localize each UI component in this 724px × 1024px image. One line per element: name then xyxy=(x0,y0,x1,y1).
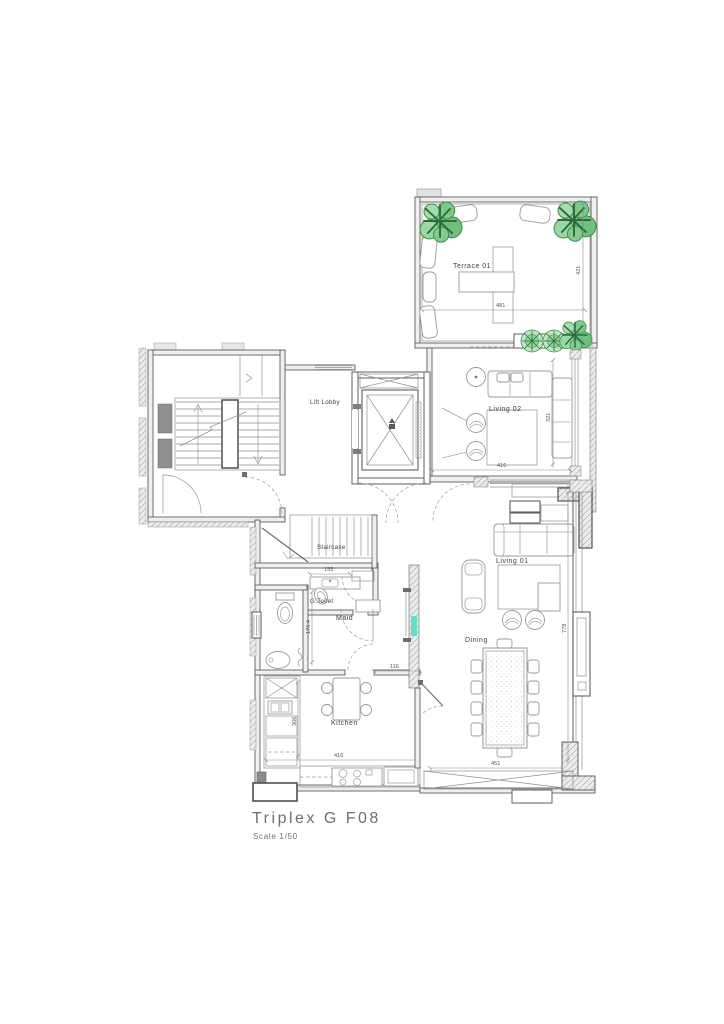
lift-symbol-icon xyxy=(389,424,395,429)
floor-plan-page: Terrace 01 481 421 Living 02 xyxy=(0,0,724,1024)
bottom-window-band xyxy=(424,771,573,803)
main-staircase xyxy=(139,343,285,527)
dim-terrace-width: 481 xyxy=(496,303,505,309)
terrace-label: Terrace 01 xyxy=(453,263,491,270)
lift-lobby: Lift Lobby xyxy=(283,365,355,406)
dim-dining-width: 451 xyxy=(491,761,500,767)
dim-kitchen-top: 116 xyxy=(390,664,399,670)
dining-room: Dining 451 xyxy=(428,637,574,770)
dim-kitchen-height: 306 xyxy=(292,717,298,726)
plan-scale: Scale 1/50 xyxy=(253,832,298,841)
dim-living2-width: 416 xyxy=(497,463,506,469)
kitchen-dining-door xyxy=(415,680,443,768)
dim-terrace-height: 421 xyxy=(576,266,582,275)
living2-rug xyxy=(487,410,537,465)
dim-kitchen-width: 416 xyxy=(334,753,343,759)
lift-lobby-label: Lift Lobby xyxy=(310,399,340,406)
lift-shaft xyxy=(352,372,430,484)
corridor-wall xyxy=(403,565,419,688)
kitchen-room: Kitchen 116 306 416 xyxy=(264,664,422,787)
planter-row xyxy=(470,321,592,352)
dim-living2-height: 321 xyxy=(546,413,552,422)
dim-stair-width: 155 xyxy=(324,567,333,573)
entrance-block xyxy=(253,772,297,801)
kitchen-label: Kitchen xyxy=(331,720,358,727)
internal-staircase: Staircase xyxy=(262,515,377,570)
dim-right-height: 778 xyxy=(562,624,568,633)
title-block: Triplex G F08 Scale 1/50 xyxy=(252,810,381,841)
living2-label: Living 02 xyxy=(489,406,522,413)
staircase-label: Staircase xyxy=(317,544,346,551)
dim-maid-height: 170.4 xyxy=(306,620,312,634)
floor-plan-drawing: Terrace 01 481 421 Living 02 xyxy=(0,0,724,1024)
maid-label: Maid xyxy=(336,615,353,622)
door-marker-accent xyxy=(411,616,417,636)
dining-label: Dining xyxy=(465,637,488,644)
g-toilet-label: G.Toilet xyxy=(310,598,333,605)
plan-title: Triplex G F08 xyxy=(252,810,381,827)
living1-label: Living 01 xyxy=(496,558,529,565)
